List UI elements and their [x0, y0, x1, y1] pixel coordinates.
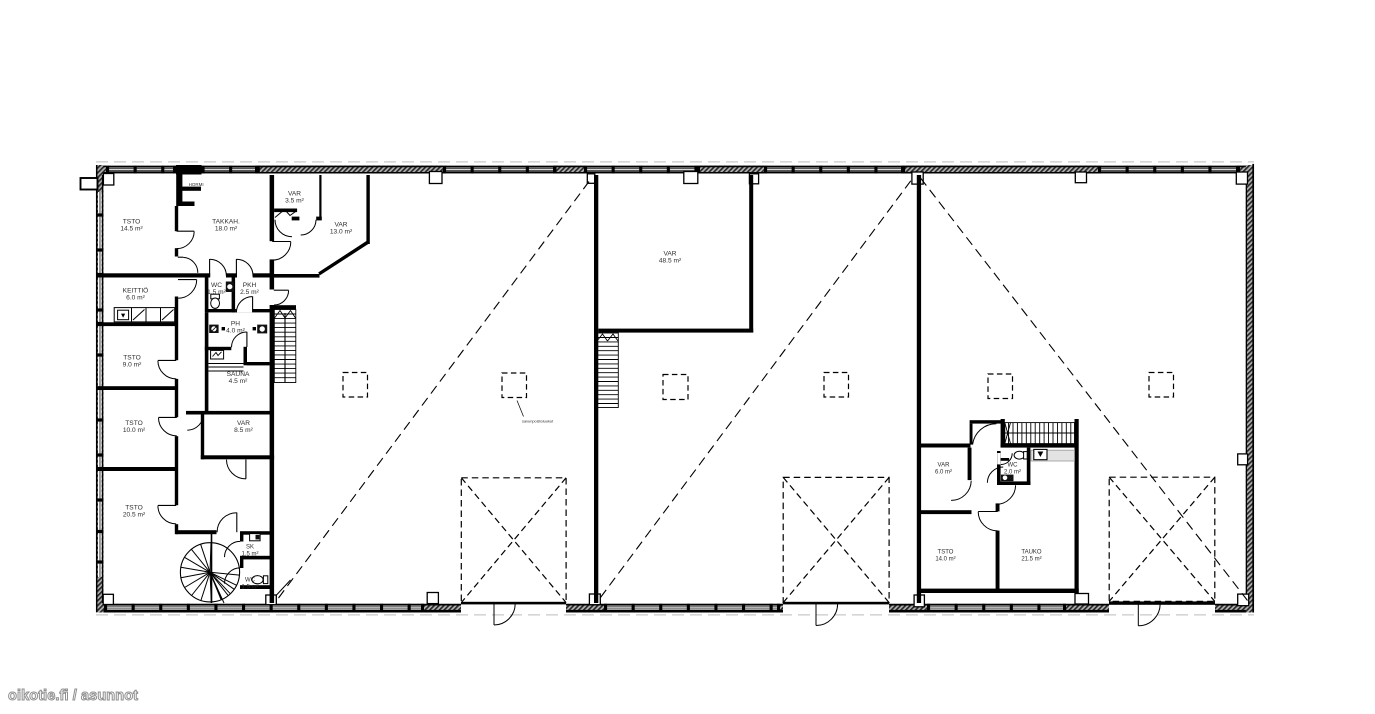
svg-text:1.5 m²: 1.5 m²	[207, 289, 226, 296]
svg-text:savunpoistoluukut: savunpoistoluukut	[522, 419, 554, 424]
svg-text:3.5 m²: 3.5 m²	[285, 198, 304, 205]
svg-text:8.5 m²: 8.5 m²	[234, 427, 253, 434]
svg-text:1.5 m²: 1.5 m²	[241, 552, 258, 558]
svg-text:1.5 m²: 1.5 m²	[241, 585, 258, 591]
svg-text:PKH: PKH	[243, 282, 257, 289]
svg-text:PH: PH	[231, 321, 240, 328]
svg-text:VAR: VAR	[237, 420, 250, 427]
svg-text:VAR: VAR	[663, 251, 676, 258]
svg-text:VAR: VAR	[938, 463, 951, 469]
svg-text:2.0 m²: 2.0 m²	[1004, 470, 1021, 476]
svg-text:4.0 m²: 4.0 m²	[226, 328, 245, 335]
svg-text:SK: SK	[246, 545, 254, 551]
svg-text:KEITTIÖ: KEITTIÖ	[123, 287, 149, 295]
svg-text:18.0 m²: 18.0 m²	[215, 226, 238, 233]
svg-text:2.5 m²: 2.5 m²	[240, 289, 259, 296]
svg-text:TSTO: TSTO	[123, 219, 140, 226]
svg-text:20.5 m²: 20.5 m²	[123, 512, 146, 519]
svg-text:TSTO: TSTO	[938, 550, 954, 556]
svg-text:VAR: VAR	[288, 191, 301, 198]
svg-text:WC: WC	[211, 282, 222, 289]
svg-text:9.0 m²: 9.0 m²	[123, 362, 142, 369]
svg-text:6.0 m²: 6.0 m²	[935, 470, 952, 476]
svg-text:4.5 m²: 4.5 m²	[229, 378, 248, 385]
svg-text:HORMI: HORMI	[189, 182, 204, 187]
svg-text:WC: WC	[1008, 463, 1019, 469]
svg-text:14.5 m²: 14.5 m²	[120, 226, 143, 233]
svg-text:TAKKAH.: TAKKAH.	[212, 219, 240, 226]
svg-text:TAUKO: TAUKO	[1021, 550, 1042, 556]
svg-text:21.5 m²: 21.5 m²	[1021, 557, 1041, 563]
svg-text:TSTO: TSTO	[123, 355, 140, 362]
svg-text:TSTO: TSTO	[125, 505, 142, 512]
svg-text:SAUNA: SAUNA	[227, 371, 250, 378]
svg-text:6.0 m²: 6.0 m²	[126, 295, 145, 302]
svg-text:TSTO: TSTO	[125, 420, 142, 427]
svg-text:VAR: VAR	[334, 222, 347, 229]
svg-text:14.0 m²: 14.0 m²	[935, 557, 955, 563]
svg-text:13.0 m²: 13.0 m²	[330, 229, 353, 236]
svg-text:10.0 m²: 10.0 m²	[123, 427, 146, 434]
svg-text:48.5 m²: 48.5 m²	[659, 258, 682, 265]
svg-text:WC: WC	[245, 578, 256, 584]
